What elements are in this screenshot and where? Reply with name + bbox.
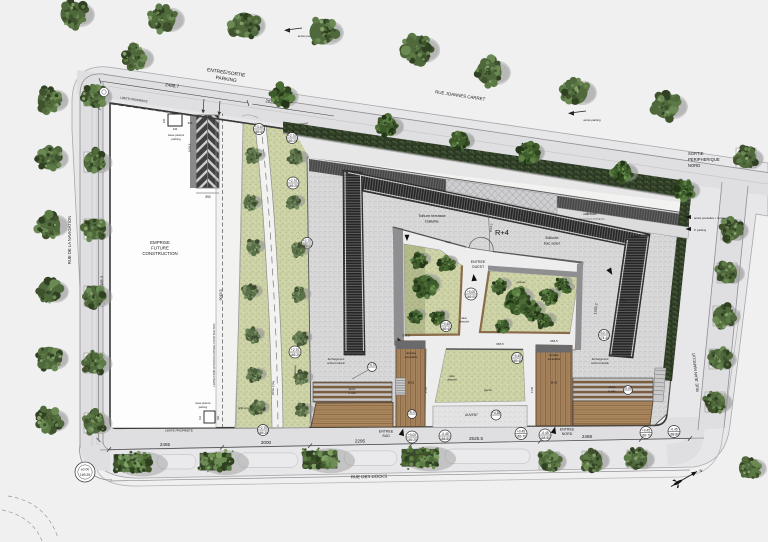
svg-text:+6.70: +6.70 [408,410,416,414]
svg-text:gazon: gazon [484,388,493,392]
svg-text:SUD: SUD [382,434,390,438]
svg-text:169.25: 169.25 [80,473,90,477]
svg-text:P. parking: P. parking [694,228,707,232]
svg-text:240: 240 [162,118,166,123]
svg-text:talus: talus [461,316,467,320]
svg-text:PERIPHERIQUE: PERIPHERIQUE [688,157,720,162]
svg-text:R+4: R+4 [495,228,509,237]
svg-text:Edicule: Edicule [545,235,559,240]
svg-text:168.80: 168.80 [540,436,550,440]
svg-text:-0.45: -0.45 [624,386,631,390]
svg-text:+0.00: +0.00 [467,290,475,294]
svg-text:CONSTRUCTION: CONSTRUCTION [142,251,177,256]
svg-text:2525.5: 2525.5 [469,436,483,441]
svg-text:accès parking: accès parking [583,118,601,122]
svg-text:RUE DES DOCKS: RUE DES DOCKS [351,474,388,480]
svg-text:169.25: 169.25 [258,431,268,435]
svg-text:Toiture terrasse: Toiture terrasse [418,213,446,218]
svg-text:312: 312 [199,415,202,420]
svg-text:+0.45: +0.45 [442,322,450,326]
svg-text:déchargement: déchargement [328,357,345,361]
svg-text:±0.00: ±0.00 [81,468,90,472]
svg-text:AUVENT: AUVENT [465,413,478,417]
svg-text:-0.45: -0.45 [541,431,548,435]
svg-text:N: N [700,468,703,473]
svg-text:NORD: NORD [562,432,573,436]
svg-text:LIMITE PROPRIETE: LIMITE PROPRIETE [165,429,193,433]
svg-text:accès le bassin: accès le bassin [327,361,345,365]
svg-text:+10.70: +10.70 [599,331,609,335]
svg-text:302: 302 [217,415,220,420]
svg-text:accès: accès [609,385,616,389]
svg-text:EMPRISE: EMPRISE [150,240,170,245]
svg-text:ENTREE: ENTREE [471,260,486,264]
svg-text:+2.70: +2.70 [303,239,311,243]
svg-text:terrasse: terrasse [406,351,416,355]
svg-text:déssolvé: déssolvé [459,320,470,324]
svg-text:R+2: R+2 [551,381,557,385]
svg-text:169.45: 169.45 [512,359,522,363]
svg-text:169.00: 169.00 [466,295,476,299]
svg-text:976.5: 976.5 [402,334,410,338]
svg-text:1654.8: 1654.8 [188,143,192,152]
svg-text:OUEST: OUEST [472,265,485,269]
svg-text:bac acier: bac acier [544,241,561,246]
svg-text:-0.45: -0.45 [670,427,677,431]
svg-text:accès: accès [349,387,356,391]
svg-text:168.80: 168.80 [440,437,450,441]
svg-text:240: 240 [173,127,178,131]
svg-text:+4.70: +4.70 [368,363,376,367]
svg-text:965.5: 965.5 [496,342,504,346]
svg-text:ENTREE: ENTREE [560,428,575,432]
svg-text:parking: parking [199,405,208,409]
svg-text:169.25: 169.25 [288,184,298,188]
svg-text:+0.00: +0.00 [408,433,416,437]
svg-text:déssolvé: déssolvé [447,379,457,382]
svg-text:+0.45: +0.45 [517,429,525,433]
svg-text:169.25: 169.25 [287,139,297,143]
svg-text:FUTURE: FUTURE [151,246,169,251]
svg-text:+3.10: +3.10 [255,125,263,129]
svg-text:le parc: le parc [608,390,616,393]
svg-text:SORTIE: SORTIE [688,151,704,156]
svg-text:NORD: NORD [688,163,700,168]
svg-text:174.40: 174.40 [599,336,609,340]
svg-text:+4.38: +4.38 [492,411,500,415]
svg-text:169.60: 169.60 [254,130,264,134]
svg-text:terrasse: terrasse [549,353,559,357]
svg-text:+0.45: +0.45 [513,354,521,358]
svg-text:accès la liquide: accès la liquide [591,361,609,365]
svg-text:+2.70: +2.70 [291,348,299,352]
svg-text:+2.70: +2.70 [259,426,267,430]
svg-text:-0.45: -0.45 [441,432,448,436]
svg-text:R+2: R+2 [408,381,414,385]
svg-text:2000: 2000 [261,440,272,445]
svg-text:pelouse: pelouse [293,365,298,375]
svg-text:accessible: accessible [548,357,561,361]
svg-text:issue pietons: issue pietons [195,401,211,405]
svg-text:+2.70: +2.70 [288,134,296,138]
svg-text:590: 590 [205,195,211,199]
svg-text:169.45: 169.45 [441,327,451,331]
svg-text:+2.70: +2.70 [289,179,297,183]
svg-text:Dallette: Dallette [425,219,439,224]
svg-text:accès poubelles + livraison: accès poubelles + livraison [694,216,728,220]
svg-text:accessible: accessible [405,355,418,359]
svg-text:callebotis: callebotis [583,212,597,216]
svg-text:LIMITE D'IMPLANTATION FUTURE C: LIMITE D'IMPLANTATION FUTURE CONSTRUCTIO… [212,323,216,386]
svg-text:169.70: 169.70 [516,434,526,438]
svg-text:le mail: le mail [349,392,356,395]
svg-text:pente 2.9%: pente 2.9% [271,380,276,395]
svg-text:2468: 2468 [582,434,593,439]
svg-text:pelouse: pelouse [516,280,526,284]
svg-text:169.25: 169.25 [290,353,300,357]
svg-text:parking: parking [171,137,181,141]
svg-text:169.25: 169.25 [407,438,417,442]
svg-text:168.80: 168.80 [669,432,679,436]
svg-text:déchargement: déchargement [592,357,609,361]
svg-text:2295: 2295 [355,438,366,443]
svg-text:ENTREE: ENTREE [379,430,394,434]
svg-text:+0.45: +0.45 [642,428,650,432]
svg-text:300: 300 [188,121,193,125]
svg-text:169.70: 169.70 [641,433,651,437]
svg-text:966.5: 966.5 [550,339,558,343]
svg-text:2465: 2465 [160,442,171,447]
svg-text:1742: 1742 [530,386,534,393]
